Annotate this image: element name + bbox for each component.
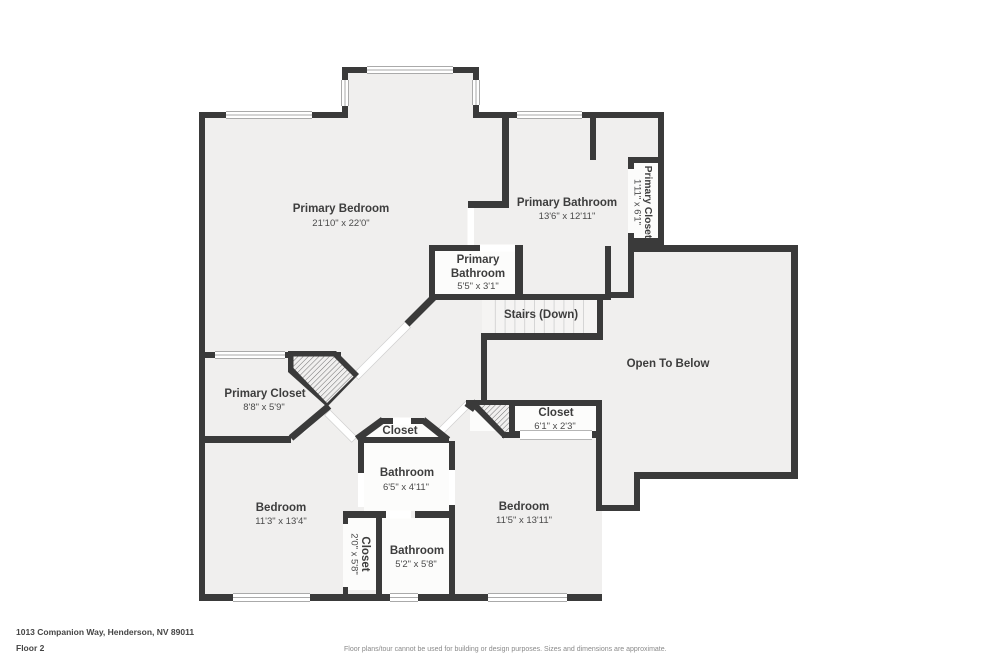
svg-text:5'2" x 5'8": 5'2" x 5'8" (395, 559, 437, 570)
svg-text:Open To Below: Open To Below (627, 358, 710, 370)
svg-text:Closet: Closet (538, 407, 573, 419)
svg-text:11'3" x 13'4": 11'3" x 13'4" (255, 516, 306, 527)
svg-text:11'5" x 13'11": 11'5" x 13'11" (496, 515, 552, 526)
svg-text:Bathroom: Bathroom (390, 545, 444, 557)
svg-text:8'8" x 5'9": 8'8" x 5'9" (243, 402, 285, 413)
svg-text:Bathroom: Bathroom (451, 268, 505, 280)
svg-text:Closet: Closet (382, 425, 417, 437)
svg-text:Primary Bathroom: Primary Bathroom (517, 197, 617, 209)
svg-text:Bedroom: Bedroom (499, 501, 549, 513)
svg-text:6'5" x 4'11": 6'5" x 4'11" (383, 482, 429, 493)
svg-text:Closet: Closet (359, 536, 371, 571)
svg-text:Primary Closet: Primary Closet (642, 166, 653, 239)
svg-text:Stairs (Down): Stairs (Down) (504, 309, 578, 321)
svg-text:Primary Bedroom: Primary Bedroom (293, 203, 390, 215)
svg-text:6'1" x 2'3": 6'1" x 2'3" (534, 421, 576, 432)
svg-text:Bedroom: Bedroom (256, 502, 306, 514)
svg-text:Primary Closet: Primary Closet (224, 388, 305, 400)
svg-text:21'10" x 22'0": 21'10" x 22'0" (312, 218, 369, 229)
svg-text:5'5" x 3'1": 5'5" x 3'1" (457, 281, 499, 292)
svg-text:Bathroom: Bathroom (380, 467, 434, 479)
svg-text:13'6" x 12'11": 13'6" x 12'11" (539, 211, 596, 222)
svg-text:Primary: Primary (457, 254, 500, 266)
svg-text:1'11" x 6'1": 1'11" x 6'1" (632, 179, 643, 225)
svg-text:2'0" x 5'8": 2'0" x 5'8" (349, 533, 360, 575)
